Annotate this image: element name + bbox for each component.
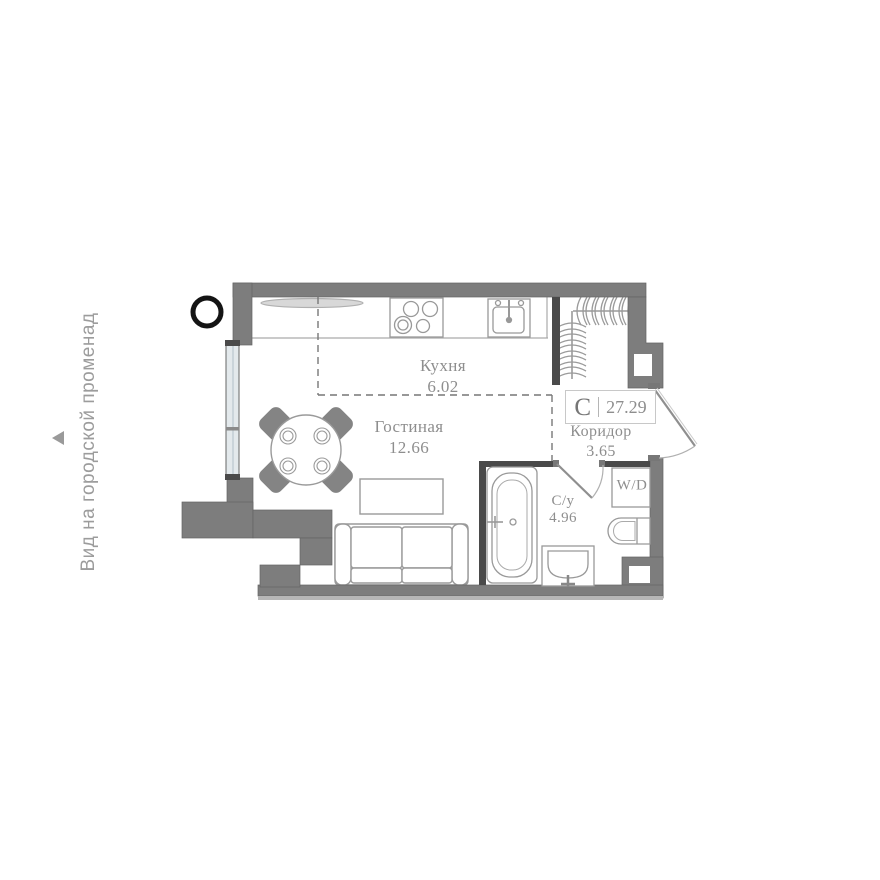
kitchen-label: Кухня 6.02	[420, 355, 466, 397]
corridor-label: Коридор 3.65	[570, 422, 631, 462]
counter-shelf	[261, 299, 363, 308]
stepped-left-wall	[182, 478, 332, 587]
unit-total-area: 27.29	[606, 398, 647, 416]
badge-divider	[598, 397, 599, 417]
wardrobe-hangers-icon	[558, 297, 634, 379]
corridor-name: Коридор	[570, 422, 631, 442]
shaft-niche	[634, 354, 652, 376]
black-circle-marker	[193, 298, 221, 326]
floor-plan-page: Вид на городской променад Кухня 6.02 Гос…	[0, 0, 880, 880]
corridor-area: 3.65	[570, 442, 631, 462]
kitchen-area: 6.02	[420, 376, 466, 397]
kitchen-sink-icon	[488, 299, 530, 337]
bathroom-name: С/у	[549, 493, 577, 510]
living-room-label: Гостиная 12.66	[375, 416, 444, 458]
sofa	[335, 524, 468, 585]
living-room-area: 12.66	[375, 437, 444, 458]
bottom-right-niche	[629, 566, 650, 583]
top-wall	[233, 283, 646, 297]
window	[225, 340, 240, 480]
kitchen-name: Кухня	[420, 355, 466, 376]
bathtub-icon	[487, 467, 537, 583]
stove-icon	[390, 298, 443, 337]
living-room-name: Гостиная	[375, 416, 444, 437]
unit-type-letter: С	[574, 395, 591, 420]
unit-type-badge: С 27.29	[565, 390, 656, 424]
toilet-icon	[608, 518, 650, 544]
bottom-wall-shadow	[258, 596, 663, 600]
bathroom-label: С/у 4.96	[549, 493, 577, 527]
coffee-table	[360, 479, 443, 514]
top-left-corner-wall	[233, 283, 252, 345]
washbasin-icon	[542, 546, 594, 587]
view-direction-arrow-icon	[52, 431, 64, 445]
dining-table	[271, 415, 341, 485]
bathroom-area: 4.96	[549, 510, 577, 527]
bottom-wall	[258, 585, 663, 596]
washer-dryer-label: W/D	[617, 478, 648, 495]
view-direction-note: Вид на городской променад	[78, 312, 100, 571]
